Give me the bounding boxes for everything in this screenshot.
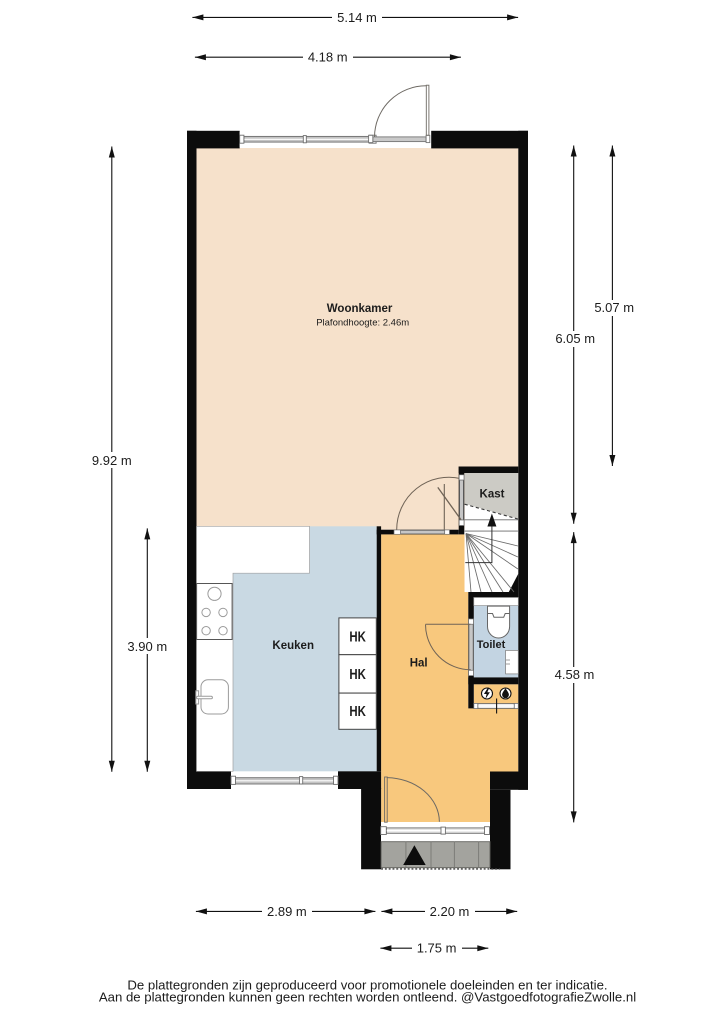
svg-text:Aan de plattegronden kunnen ge: Aan de plattegronden kunnen geen rechten… [99, 990, 636, 1005]
svg-text:Kast: Kast [480, 489, 505, 501]
svg-text:5.14 m: 5.14 m [337, 10, 377, 25]
svg-text:4.58 m: 4.58 m [555, 667, 595, 682]
svg-text:Woonkamer: Woonkamer [327, 303, 393, 315]
svg-text:HK: HK [349, 703, 366, 720]
svg-text:2.20 m: 2.20 m [430, 904, 470, 919]
svg-text:Toilet: Toilet [477, 639, 506, 651]
svg-text:Hal: Hal [410, 658, 428, 670]
svg-text:HK: HK [349, 628, 366, 645]
svg-text:Plafondhoogte: 2.46m: Plafondhoogte: 2.46m [316, 317, 409, 328]
svg-text:6.05 m: 6.05 m [555, 331, 595, 346]
svg-text:4.18 m: 4.18 m [308, 50, 348, 65]
svg-text:1.75 m: 1.75 m [417, 941, 457, 956]
svg-text:HK: HK [349, 666, 366, 683]
svg-text:Keuken: Keuken [272, 640, 314, 652]
svg-text:3.90 m: 3.90 m [127, 639, 167, 654]
svg-text:2.89 m: 2.89 m [267, 904, 307, 919]
svg-text:5.07 m: 5.07 m [594, 300, 634, 315]
svg-text:9.92 m: 9.92 m [92, 453, 132, 468]
